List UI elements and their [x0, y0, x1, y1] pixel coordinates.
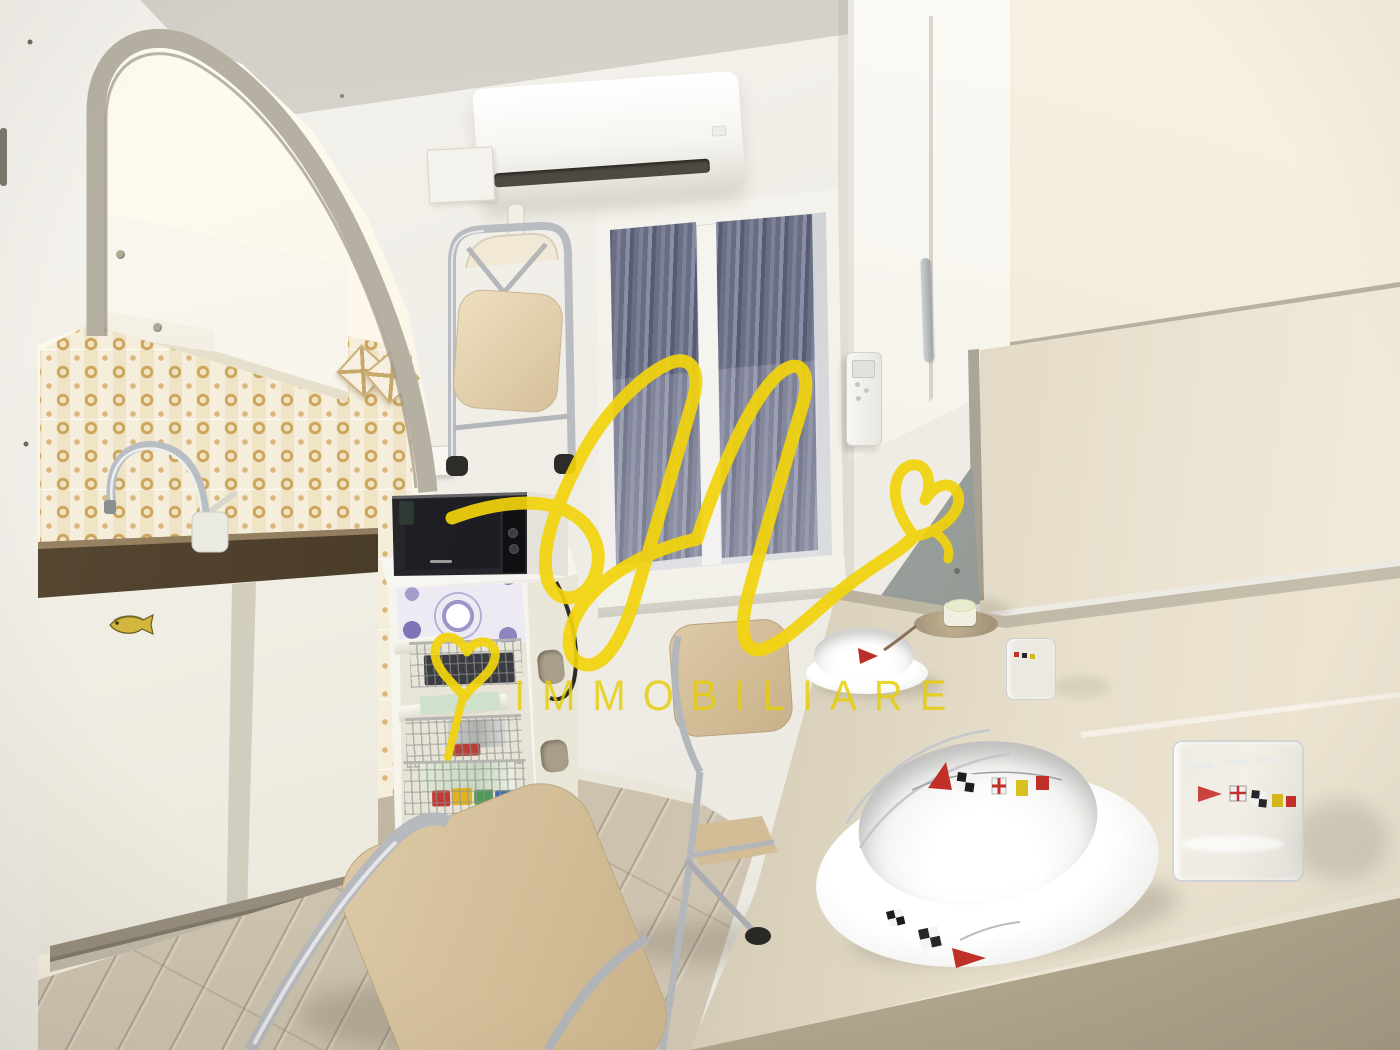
- fl-script-logo: [0, 0, 1400, 1050]
- watermark-wordmark: IMMOBILIARE: [514, 673, 963, 721]
- kitchen-photo: IMMOBILIARE: [0, 0, 1400, 1050]
